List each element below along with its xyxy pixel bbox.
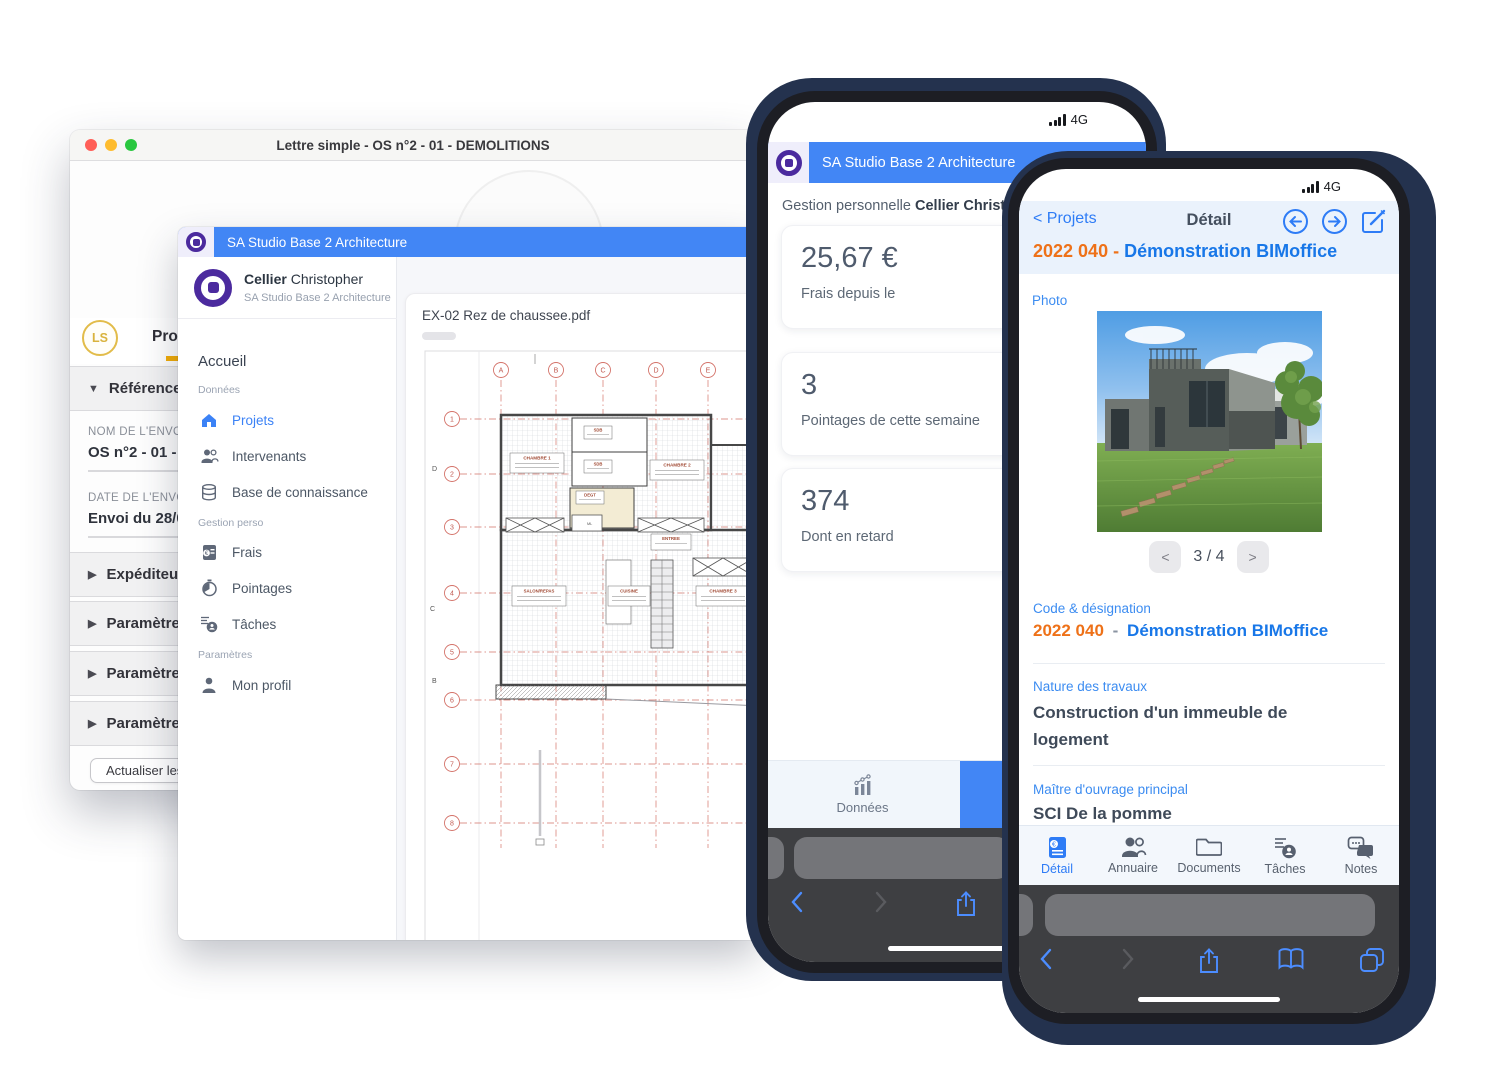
field-nature-value: Construction d'un immeuble de logement [1033,699,1333,753]
building-render-image [1097,311,1322,532]
ls-avatar-badge: LS [82,320,118,356]
sidebar-item-taches[interactable]: Tâches [178,609,397,639]
sidebar-item-intervenants[interactable]: Intervenants [178,441,397,471]
browser-back-icon[interactable] [790,890,804,914]
mac-titlebar: Lettre simple - OS n°2 - 01 - DEMOLITION… [70,130,756,161]
chevron-down-icon: ▼ [88,383,99,395]
svg-text:6: 6 [450,698,454,705]
photo-page-indicator: 3 / 4 [1193,548,1224,566]
tab-detail[interactable]: € Détail [1019,826,1095,885]
desktop-app-window: SA Studio Base 2 Architecture Cellier Ch… [178,227,758,940]
chevron-right-icon: ▶ [88,617,96,630]
stat-label: Dont en retard [801,529,894,545]
app-logo-tile [768,142,809,183]
svg-text:CHAMBRE 2: CHAMBRE 2 [663,463,691,468]
project-title: 2022 040 - Démonstration BIMoffice [1033,241,1337,262]
pdf-toolbar-pill[interactable] [422,332,456,340]
circle-arrow-left-icon[interactable] [1282,208,1309,235]
svg-text:DEGT: DEGT [584,493,596,498]
tab-notes[interactable]: Notes [1323,826,1399,885]
divider [1033,765,1385,766]
tasks-icon [198,615,220,633]
phone2-statusbar: 4G [1302,179,1341,194]
photo-next-button[interactable]: > [1237,541,1269,573]
user-name: Cellier Christopher [244,271,363,287]
photo-pager: < 3 / 4 > [1019,541,1399,573]
tab-annuaire[interactable]: Annuaire [1095,826,1171,885]
svg-text:1: 1 [450,417,454,424]
sidebar-item-accueil[interactable]: Accueil [198,353,246,370]
network-type: 4G [1071,112,1088,127]
window-title: Lettre simple - OS n°2 - 01 - DEMOLITION… [70,138,756,153]
database-icon [198,484,220,501]
phone2-nav-header: < Projets Détail [1019,201,1399,274]
browser-forward-icon[interactable] [1121,947,1135,971]
sidebar-section-donnees: Données [198,384,240,396]
pdf-file-title: EX-02 Rez de chaussee.pdf [422,308,590,323]
receipt-icon: € [198,544,220,561]
accordion-label: Paramètres [106,715,188,732]
sidebar-item-projets[interactable]: Projets [178,405,397,435]
accordion-label: Expéditeur [106,566,184,583]
svg-text:CHAMBRE 1: CHAMBRE 1 [523,456,551,461]
svg-text:SALON/REPAS: SALON/REPAS [524,589,555,594]
tab-documents[interactable]: Documents [1171,826,1247,885]
svg-text:C: C [600,368,605,375]
field-code-label: Code & désignation [1033,601,1151,616]
phone2-browser-chrome [1019,885,1399,1013]
marketing-composite: Lettre simple - OS n°2 - 01 - DEMOLITION… [0,0,1487,1080]
share-icon[interactable] [954,890,978,918]
field-moa-label: Maître d'ouvrage principal [1033,782,1188,797]
field-nature-label: Nature des travaux [1033,679,1147,694]
photo-prev-button[interactable]: < [1149,541,1181,573]
sidebar-section-parametres: Paramètres [198,649,252,661]
svg-text:€: € [1052,841,1056,848]
cellular-signal-icon [1302,181,1319,193]
sidebar-item-mon-profil[interactable]: Mon profil [178,670,397,700]
browser-forward-icon[interactable] [874,890,888,914]
chevron-right-icon: ▶ [88,667,96,680]
bimoffice-logo-icon [186,232,206,252]
accordion-label: Paramètres [106,615,188,632]
svg-text:A: A [499,368,504,375]
svg-text:8: 8 [450,821,454,828]
home-icon [198,412,220,429]
address-bar[interactable] [794,837,1010,879]
svg-text:SDB: SDB [594,462,603,467]
svg-text:5: 5 [450,650,454,657]
person-icon [198,677,220,694]
network-type: 4G [1324,179,1341,194]
tasks-icon [1273,836,1297,859]
svg-text:D: D [432,466,437,473]
svg-text:D: D [653,368,658,375]
sidebar-item-pointages[interactable]: Pointages [178,573,397,603]
pdf-viewer-card: EX-02 Rez de chaussee.pdf [405,293,758,940]
photo-section-label: Photo [1032,293,1067,308]
field-nom-label: NOM DE L'ENVOI [88,426,186,438]
field-date-label: DATE DE L'ENVOI [88,492,189,504]
svg-text:B: B [432,678,437,685]
divider [1033,663,1385,664]
previous-tab-stub[interactable] [768,837,784,879]
floor-plan-drawing: A B C D E 1 2 3 4 5 6 7 8 [422,350,758,940]
svg-text:CUISINE: CUISINE [620,589,638,594]
svg-text:C: C [430,606,435,613]
circle-arrow-right-icon[interactable] [1321,208,1348,235]
phone1-statusbar: 4G [1049,112,1088,127]
stat-label: Frais depuis le [801,286,895,302]
accordion-label: Paramètres [106,665,188,682]
sidebar-section-gestion-perso: Gestion perso [198,517,263,529]
sidebar-item-frais[interactable]: € Frais [178,537,397,567]
chat-bubbles-icon [1347,836,1375,859]
svg-text:2: 2 [450,472,454,479]
tab-donnees[interactable]: Données [768,761,957,828]
svg-text:4: 4 [450,591,454,598]
phone2-tabbar: € Détail Annuaire [1019,825,1399,885]
bimoffice-logo-icon [776,150,802,176]
chart-icon [851,774,875,796]
field-moa-value: SCI De la pomme [1033,804,1172,824]
svg-text:E: E [706,368,711,375]
stopwatch-icon [198,579,220,597]
browser-back-icon[interactable] [1039,947,1053,971]
svg-text:7: 7 [450,762,454,769]
svg-text:3: 3 [450,525,454,532]
share-icon[interactable] [1197,947,1221,975]
previous-tab-stub[interactable] [1019,894,1033,936]
people-icon [198,448,220,464]
svg-text:ML: ML [587,522,592,526]
tabs-icon[interactable] [1359,947,1385,973]
phone2-screen: 4G < Projets Détail [1019,169,1399,1013]
bookmarks-book-icon[interactable] [1277,947,1305,971]
app-header: SA Studio Base 2 Architecture [178,227,758,257]
svg-text:CHAMBRE 3: CHAMBRE 3 [709,589,737,594]
stat-value: 374 [801,485,849,518]
floor-plan-viewport[interactable]: A B C D E 1 2 3 4 5 6 7 8 [422,350,758,940]
svg-text:B: B [554,368,559,375]
app-sidebar: Cellier Christopher SA Studio Base 2 Arc… [178,257,397,940]
user-profile-row[interactable]: Cellier Christopher SA Studio Base 2 Arc… [178,257,397,319]
sidebar-item-base-de-connaissance[interactable]: Base de connaissance [178,477,397,507]
bimoffice-logo-icon [194,269,232,307]
people-icon [1120,836,1147,858]
stat-label: Pointages de cette semaine [801,413,980,429]
phone1-header-title: SA Studio Base 2 Architecture [822,155,1015,171]
chevron-right-icon: ▶ [88,568,96,581]
address-bar[interactable] [1045,894,1375,936]
chevron-right-icon: ▶ [88,717,96,730]
stat-value: 25,67 € [801,242,898,275]
home-indicator[interactable] [1138,997,1280,1002]
app-header-title: SA Studio Base 2 Architecture [227,235,407,250]
svg-text:ENTREE: ENTREE [662,536,680,541]
app-main-area: EX-02 Rez de chaussee.pdf [397,257,758,940]
stat-value: 3 [801,369,817,402]
user-organization: SA Studio Base 2 Architecture [244,292,391,304]
document-detail-icon: € [1048,836,1067,859]
compose-edit-icon[interactable] [1360,208,1387,235]
field-code-value: 2022 040 - Démonstration BIMoffice [1033,621,1328,641]
svg-text:SDB: SDB [594,428,603,433]
cellular-signal-icon [1049,114,1066,126]
folder-icon [1196,837,1222,858]
project-photo[interactable] [1097,311,1322,532]
app-logo-tile [178,227,214,257]
tab-taches[interactable]: Tâches [1247,826,1323,885]
